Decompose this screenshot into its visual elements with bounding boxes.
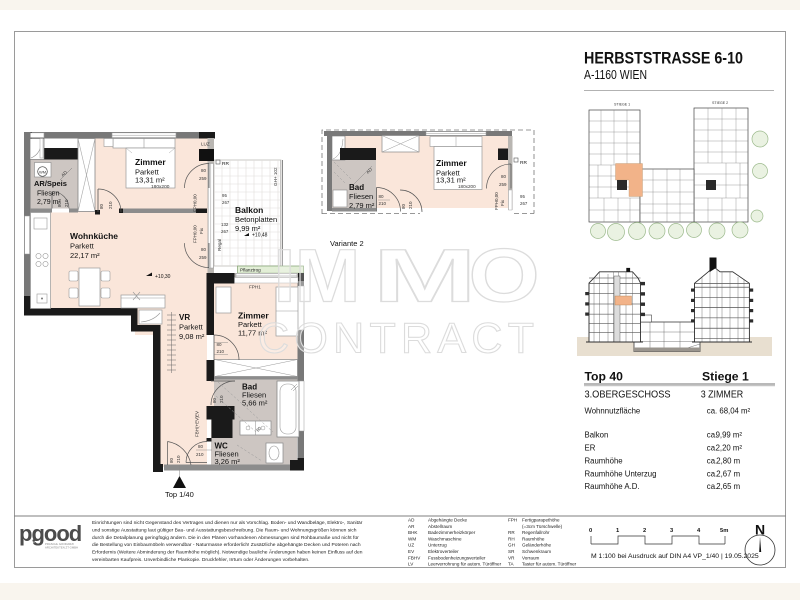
svg-text:9,08 m²: 9,08 m² [179, 332, 205, 341]
svg-text:Balkon: Balkon [235, 205, 263, 215]
svg-text:259: 259 [199, 176, 207, 181]
svg-text:210: 210 [379, 201, 387, 206]
svg-text:Bad: Bad [349, 183, 364, 192]
svg-text:5,66 m²: 5,66 m² [242, 399, 268, 408]
svg-text:Raumhöhe Unterzug: Raumhöhe Unterzug [585, 470, 657, 479]
svg-text:Fussbodenheizungsverteiler: Fussbodenheizungsverteiler [428, 555, 486, 560]
svg-text:Fix: Fix [199, 227, 204, 234]
svg-text:WM: WM [39, 169, 46, 174]
svg-text:FBHV: FBHV [408, 555, 421, 560]
svg-text:Geländerhöhe: Geländerhöhe [522, 543, 552, 548]
svg-text:80: 80 [201, 247, 207, 252]
svg-text:22,17 m²: 22,17 m² [70, 251, 100, 260]
svg-text:FBH(+EV): FBH(+EV) [195, 416, 200, 437]
svg-text:Betonplatten: Betonplatten [235, 215, 277, 224]
svg-text:80: 80 [501, 174, 507, 179]
svg-text:210: 210 [219, 395, 224, 403]
svg-text:Raumhöhe: Raumhöhe [522, 536, 545, 541]
svg-text:STIEGE 1: STIEGE 1 [614, 103, 630, 107]
svg-text:Stiege 1: Stiege 1 [702, 370, 749, 384]
svg-text:Fliesen: Fliesen [37, 191, 60, 198]
svg-text:259: 259 [199, 255, 207, 260]
svg-text:AR: AR [408, 524, 415, 529]
svg-text:132: 132 [221, 222, 229, 227]
svg-text:O: O [468, 233, 539, 317]
svg-text:STIEGE 2: STIEGE 2 [712, 101, 728, 105]
svg-text:(=3cm Türschwelle): (=3cm Türschwelle) [522, 524, 563, 529]
svg-text:0: 0 [589, 528, 592, 534]
svg-text:M: M [373, 234, 477, 318]
svg-text:vereinbarten Kaufpreis. Unverb: vereinbarten Kaufpreis. Unverbindliche P… [92, 556, 310, 563]
svg-text:Wohnküche: Wohnküche [70, 231, 118, 241]
svg-text:80: 80 [212, 397, 217, 403]
svg-text:2: 2 [643, 528, 646, 534]
svg-text:TA: TA [508, 562, 514, 567]
svg-text:Top 1/40: Top 1/40 [165, 490, 194, 499]
svg-text:Fix: Fix [500, 199, 505, 206]
svg-text:VR: VR [508, 555, 515, 560]
svg-text:BHK: BHK [408, 530, 418, 535]
svg-text:RR: RR [520, 160, 527, 166]
svg-text:Regenfallrohr: Regenfallrohr [522, 530, 550, 535]
svg-text:HERBSTSTRASSE 6-10: HERBSTSTRASSE 6-10 [584, 50, 743, 68]
svg-text:+10,30: +10,30 [155, 274, 171, 280]
svg-text:Taster für autom. Türöffner: Taster für autom. Türöffner [522, 562, 577, 567]
svg-text:N: N [755, 522, 765, 538]
svg-text:M 1:100 bei Ausdruck auf DIN A: M 1:100 bei Ausdruck auf DIN A4 VP_1/40 … [591, 553, 759, 560]
svg-text:Regal: Regal [217, 239, 222, 251]
svg-text:80: 80 [198, 444, 204, 449]
svg-text:AD: AD [408, 518, 415, 523]
svg-text:180x200: 180x200 [458, 184, 476, 189]
svg-text:Balkon: Balkon [585, 431, 609, 440]
svg-text:Pflanztrog: Pflanztrog [240, 268, 261, 273]
svg-text:GH: GH [508, 543, 515, 548]
svg-text:A-1160 WIEN: A-1160 WIEN [584, 68, 647, 82]
svg-text:210: 210 [176, 455, 181, 463]
svg-text:2,79 m²: 2,79 m² [349, 201, 375, 210]
svg-text:Raumhöhe: Raumhöhe [585, 456, 623, 465]
svg-text:FPH1: FPH1 [249, 285, 261, 290]
svg-text:80: 80 [99, 203, 104, 209]
svg-text:SR: SR [508, 549, 515, 554]
svg-text:80: 80 [169, 457, 174, 463]
svg-text:210: 210 [217, 349, 225, 354]
svg-text:FPH: FPH [508, 518, 517, 523]
svg-text:210: 210 [64, 199, 69, 207]
svg-text:AR/Speis: AR/Speis [34, 179, 67, 188]
svg-text:Vorraum: Vorraum [522, 555, 540, 560]
svg-text:80: 80 [379, 194, 385, 199]
svg-text:I: I [274, 234, 296, 318]
svg-text:Fertigparapethöhe: Fertigparapethöhe [522, 518, 560, 523]
svg-text:Einrichtungen sind nicht Gegen: Einrichtungen sind nicht Gegenstand des … [92, 520, 363, 526]
svg-text:Raumhöhe A.D.: Raumhöhe A.D. [585, 482, 640, 491]
svg-text:FPH0,00: FPH0,00 [193, 225, 198, 243]
svg-text:ARCHITEKTEN ZT GMBH: ARCHITEKTEN ZT GMBH [45, 545, 78, 549]
svg-text:95: 95 [520, 194, 525, 199]
svg-text:GH+ 102: GH+ 102 [273, 167, 278, 186]
svg-text:Leerverrohrung für autom. Türö: Leerverrohrung für autom. Türöffner [428, 562, 502, 567]
svg-text:5m: 5m [720, 528, 728, 534]
svg-text:210: 210 [108, 201, 113, 209]
svg-text:Elektroverteiler: Elektroverteiler [428, 549, 459, 554]
svg-text:WM: WM [408, 536, 416, 541]
svg-text:die Bestellung von Einbaumöbel: die Bestellung von Einbaumöbeln verwendb… [92, 542, 361, 548]
svg-text:210: 210 [408, 201, 413, 209]
svg-text:EV: EV [195, 411, 200, 417]
svg-text:80: 80 [217, 342, 223, 347]
svg-text:und sonstige Ausstattung laut: und sonstige Ausstattung laut gültiger B… [92, 527, 357, 533]
svg-text:Abgehängte Decke: Abgehängte Decke [428, 518, 468, 523]
svg-text:2,65 m: 2,65 m [716, 482, 740, 491]
svg-text:Badezimmerheizkörper: Badezimmerheizkörper [428, 530, 476, 535]
svg-text:2,67 m: 2,67 m [716, 470, 740, 479]
svg-text:210: 210 [196, 452, 204, 457]
svg-text:RR: RR [508, 530, 515, 535]
svg-text:95: 95 [222, 193, 227, 198]
svg-text:Waschmaschine: Waschmaschine [428, 536, 462, 541]
svg-text:2,80 m: 2,80 m [716, 456, 740, 465]
svg-text:267: 267 [221, 229, 229, 234]
svg-text:FPH0,00: FPH0,00 [494, 192, 499, 210]
svg-text:80: 80 [401, 203, 406, 209]
svg-text:VR: VR [179, 313, 190, 322]
svg-text:UZ: UZ [408, 543, 414, 548]
svg-text:M: M [295, 234, 361, 318]
svg-text:+10,48: +10,48 [252, 233, 268, 239]
svg-text:Parkett: Parkett [179, 323, 204, 332]
svg-text:Zimmer: Zimmer [436, 158, 467, 168]
svg-text:Wohnnutzfläche: Wohnnutzfläche [585, 407, 641, 416]
svg-text:267: 267 [222, 200, 230, 205]
svg-text:13,31 m²: 13,31 m² [436, 176, 466, 185]
svg-text:9,99 m²: 9,99 m² [716, 431, 743, 440]
svg-text:Fliesen: Fliesen [349, 192, 373, 201]
svg-text:FPH0,00: FPH0,00 [193, 194, 198, 212]
svg-text:durch die Detailplanung gering: durch die Detailplanung geringfügig ände… [92, 535, 359, 541]
svg-text:Abstellraum: Abstellraum [428, 524, 452, 529]
svg-text:267: 267 [520, 201, 528, 206]
svg-text:Zimmer: Zimmer [135, 157, 166, 167]
svg-text:3 ZIMMER: 3 ZIMMER [701, 390, 744, 401]
svg-text:Schwenkraum: Schwenkraum [522, 549, 551, 554]
svg-text:RH: RH [508, 536, 515, 541]
svg-text:80: 80 [201, 168, 207, 173]
svg-text:ca. 68,04 m²: ca. 68,04 m² [707, 407, 751, 416]
svg-text:180x200: 180x200 [151, 184, 170, 190]
svg-text:2,20 m²: 2,20 m² [716, 444, 743, 453]
svg-text:259: 259 [499, 182, 507, 187]
svg-text:2,79 m²: 2,79 m² [37, 199, 61, 206]
svg-text:ER: ER [585, 444, 596, 453]
svg-text:Unterzug: Unterzug [428, 543, 447, 548]
svg-text:CONTRACT: CONTRACT [258, 315, 539, 363]
svg-text:EV: EV [408, 549, 415, 554]
svg-text:Top 40: Top 40 [585, 370, 624, 384]
svg-text:LUZ: LUZ [201, 142, 210, 147]
svg-text:RR: RR [222, 161, 229, 167]
svg-text:Erfordernis (Weitere Abminderu: Erfordernis (Weitere Abminderung der Rau… [92, 549, 363, 556]
svg-text:13,31 m²: 13,31 m² [135, 176, 165, 185]
svg-text:Parkett: Parkett [70, 242, 95, 251]
svg-text:3,26 m²: 3,26 m² [215, 457, 241, 466]
svg-text:3.OBERGESCHOSS: 3.OBERGESCHOSS [585, 390, 671, 401]
